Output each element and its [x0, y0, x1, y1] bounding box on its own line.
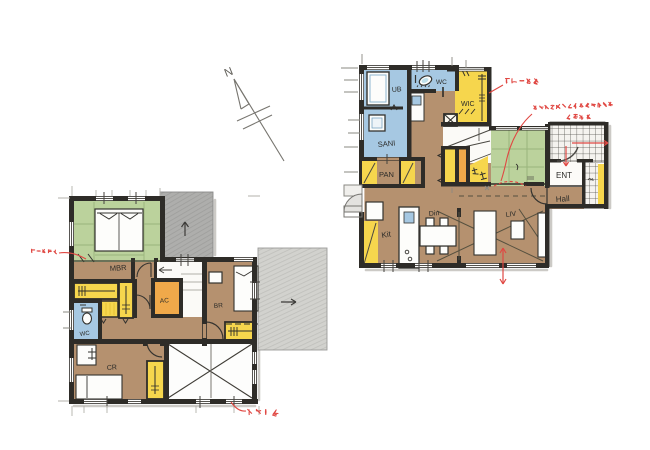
svg-text:LIV: LIV: [505, 211, 517, 219]
svg-text:Din: Din: [429, 210, 440, 218]
svg-text:SANI: SANI: [377, 139, 395, 149]
svg-text:CR: CR: [107, 364, 118, 372]
svg-text:UB: UB: [392, 86, 403, 94]
svg-text:BR: BR: [214, 302, 224, 310]
svg-text:Hall: Hall: [556, 194, 571, 204]
svg-text:MBR: MBR: [110, 263, 128, 273]
svg-text:AC: AC: [160, 297, 170, 305]
svg-text:WIC: WIC: [461, 101, 475, 108]
svg-text:ENT: ENT: [556, 171, 572, 180]
svg-text:WC: WC: [436, 79, 447, 86]
svg-text:PAN: PAN: [379, 170, 394, 179]
